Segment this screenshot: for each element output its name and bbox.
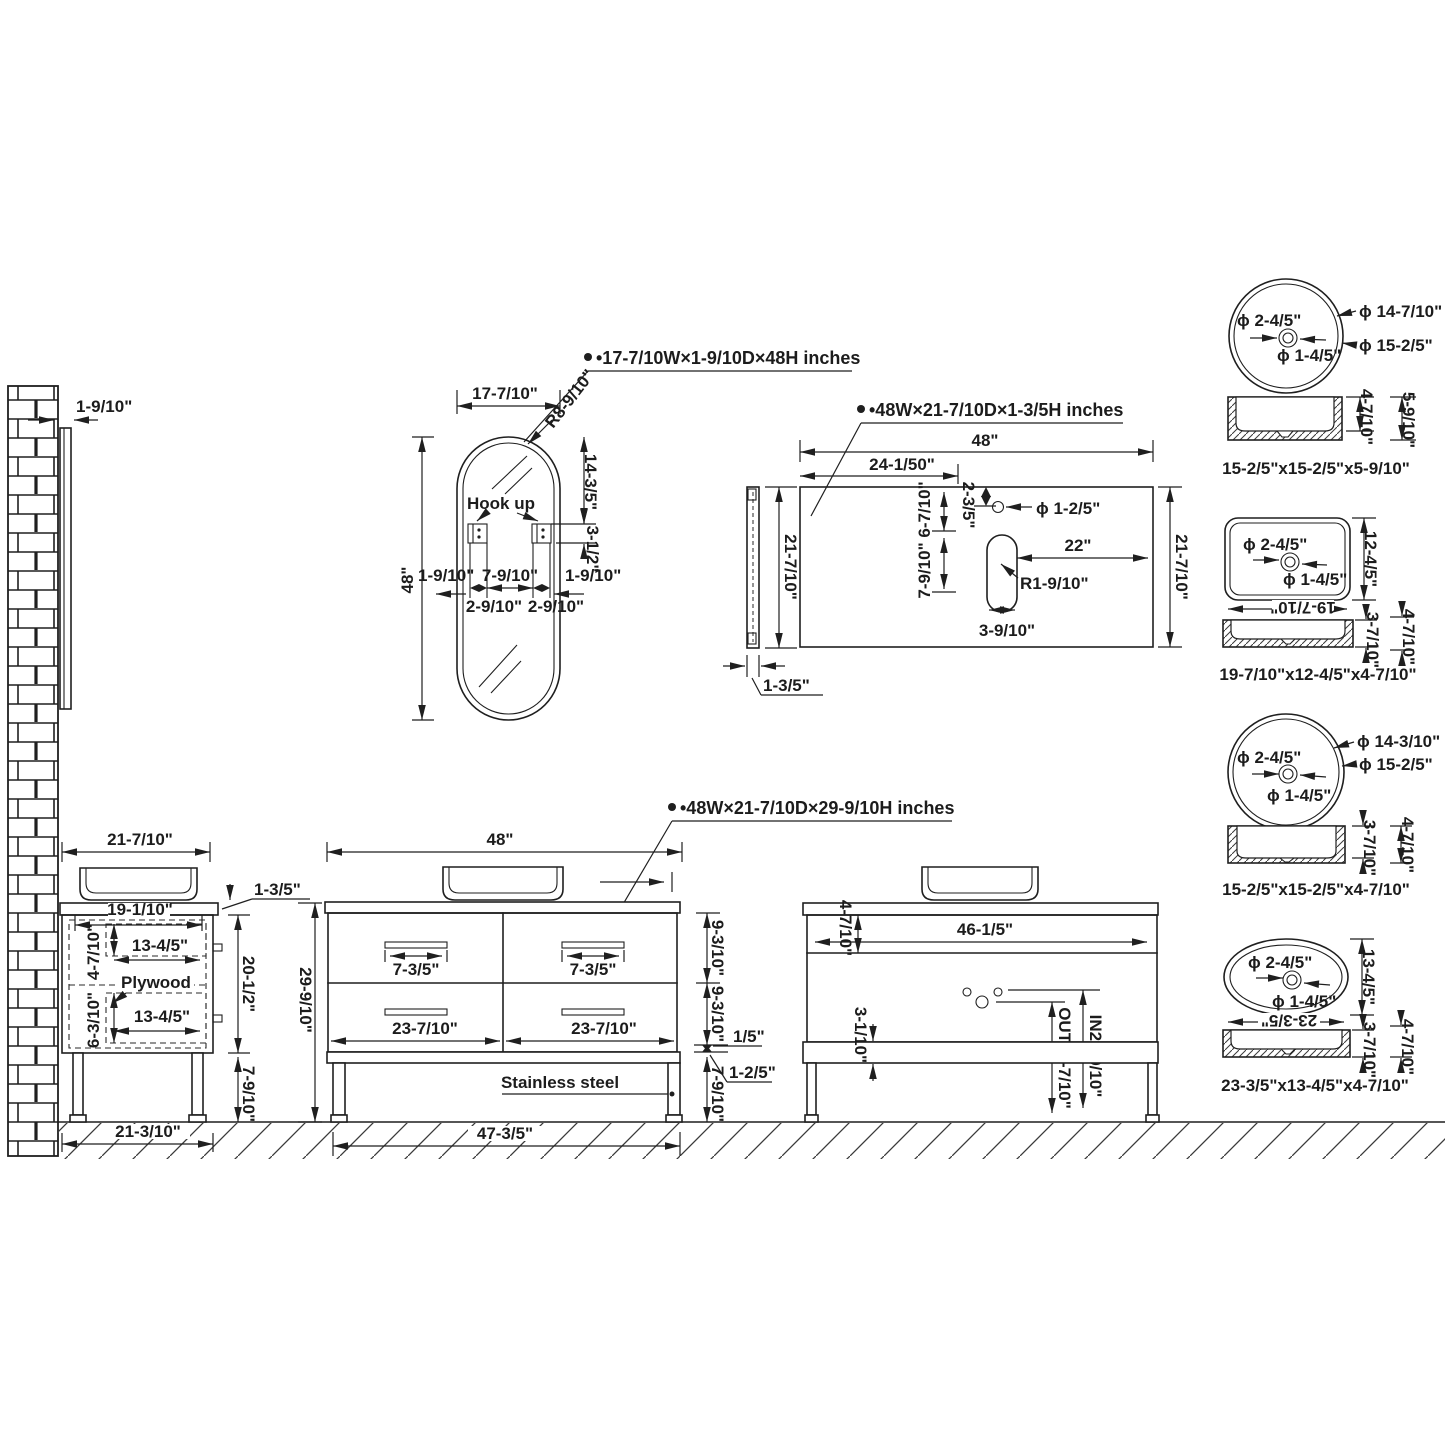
- sink3-outer-dim: ϕ 14-3/10": [1357, 732, 1440, 751]
- slab-depth-dim: 21-7/10": [781, 534, 800, 600]
- sink1-inner-height-dim: 4-7/10": [1357, 389, 1376, 445]
- side-drawer2-height-dim: 6-3/10": [84, 992, 103, 1048]
- countertop-width-dim: 48": [972, 431, 999, 450]
- mirror-hook2-width-dim: 2-9/10": [528, 597, 584, 616]
- sink4-views: ϕ 2-4/5" ϕ 1-4/5" 13-4/5" 23-3/5" 3-7/10…: [1221, 939, 1417, 1095]
- sink2-caption: 19-7/10"x12-4/5"x4-7/10": [1219, 665, 1416, 684]
- side-top-dim: 21-7/10": [107, 830, 173, 849]
- side-floor-dim: 21-3/10": [115, 1122, 181, 1141]
- front-height-dim: 29-9/10": [296, 967, 315, 1033]
- sink2-drain-dim: ϕ 1-4/5": [1283, 570, 1347, 589]
- sink2-inner-height-dim: 3-7/10": [1363, 612, 1382, 668]
- side-leg-height-dim: 7-9/10": [239, 1066, 258, 1122]
- countertop-spec-label: •48W×21-7/10D×1-3/5H inches: [869, 400, 1123, 420]
- side-drawer2-width-dim: 13-4/5": [134, 1007, 190, 1026]
- brick-wall: [8, 386, 58, 1156]
- side-drawer1-width-dim: 13-4/5": [132, 936, 188, 955]
- sink2-height-dim: 12-4/5": [1361, 531, 1380, 587]
- sink1-outer-dim: ϕ 14-7/10": [1359, 302, 1442, 321]
- sink2-outer-height-dim: 4-7/10": [1399, 609, 1418, 665]
- mirror-gap-left-dim: 1-9/10": [418, 566, 474, 585]
- front-leg-dim: 7-9/10": [708, 1066, 727, 1122]
- mirror-hook1-width-dim: 2-9/10": [466, 597, 522, 616]
- sink4-outer-height-dim: 4-7/10": [1398, 1019, 1417, 1075]
- mirror-gap-right-dim: 1-9/10": [565, 566, 621, 585]
- slot-position-dims: 7-9/10" 6-7/10": [915, 481, 934, 598]
- side-thickness-dim: 1-3/5": [254, 880, 301, 899]
- sink4-height-dim: 13-4/5": [1359, 949, 1378, 1005]
- hook-up-label: Hook up: [467, 494, 535, 513]
- sink3-faucet-dim: ϕ 2-4/5": [1237, 748, 1301, 767]
- front-drawer-left-dim: 23-7/10": [392, 1019, 458, 1038]
- sink2-faucet-dim: ϕ 2-4/5": [1243, 535, 1307, 554]
- sink4-caption: 23-3/5"x13-4/5"x4-7/10": [1221, 1076, 1409, 1095]
- mirror-hooks: [468, 524, 551, 543]
- back-top-dim: 4-7/10": [836, 900, 855, 956]
- back-width-dim: 46-1/5": [957, 920, 1013, 939]
- front-drawer-right-dim: 23-7/10": [571, 1019, 637, 1038]
- stainless-steel-label: Stainless steel: [501, 1073, 619, 1092]
- slot-width-dim: 3-9/10": [979, 621, 1035, 640]
- mirror-upper-dim: 14-3/5": [581, 454, 600, 510]
- countertop-top-view: •48W×21-7/10D×1-3/5H inches 48" 24-1/50"…: [800, 400, 1191, 647]
- front-handle-left-dim: 7-3/5": [393, 960, 440, 979]
- countertop-front-dim: 2-3/5": [959, 482, 978, 529]
- vanity-spec-label: •48W×21-7/10D×29-9/10H inches: [680, 798, 954, 818]
- vanity-back-view: 4-7/10" 46-1/5" OUT19-7/10" IN20-9/10" 3…: [803, 867, 1159, 1122]
- front-rail-dim: 1-2/5": [729, 1063, 776, 1082]
- front-base-dim: 47-3/5": [477, 1124, 533, 1143]
- sink4-drain-dim: ϕ 1-4/5": [1272, 992, 1336, 1011]
- sink3-views: ϕ 2-4/5" ϕ 14-3/10" ϕ 15-2/5" ϕ 1-4/5" 3…: [1222, 714, 1440, 899]
- sink1-drain-dim: ϕ 1-4/5": [1277, 346, 1341, 365]
- sink3-inner-height-dim: 3-7/10": [1360, 820, 1379, 876]
- side-cabinet-height-dim: 20-1/2": [239, 956, 258, 1012]
- mirror-width-dim: 17-7/10": [472, 384, 538, 403]
- front-width-dim: 48": [487, 830, 514, 849]
- sink1-faucet-dim: ϕ 2-4/5": [1237, 311, 1301, 330]
- faucet-hole-dim: ϕ 1-2/5": [1036, 499, 1100, 518]
- side-drawer1-height-dim: 4-7/10": [84, 924, 103, 980]
- vanity-spec-drawing: 1-9/10" Hook up •17-7/10W×1-9/10D×48H in…: [0, 0, 1445, 1445]
- mirror-between-dim: 7-9/10": [482, 566, 538, 585]
- sink4-inner-height-dim: 3-7/10": [1360, 1022, 1379, 1078]
- sink1-caption: 15-2/5"x15-2/5"x5-9/10": [1222, 459, 1410, 478]
- slot-offset-dim: 22": [1065, 536, 1092, 555]
- sink1-views: ϕ 2-4/5" ϕ 14-7/10" ϕ 15-2/5" ϕ 1-4/5" 4…: [1222, 279, 1442, 478]
- vanity-side-view: 21-7/10" 1-3/5" 19-1/10" 4-7/10" 13-4/5"…: [60, 830, 310, 1152]
- sink4-faucet-dim: ϕ 2-4/5": [1248, 953, 1312, 972]
- sink3-caption: 15-2/5"x15-2/5"x4-7/10": [1222, 880, 1410, 899]
- front-gap-dim: 1/5": [733, 1027, 765, 1046]
- side-inner-width-dim: 19-1/10": [107, 900, 173, 919]
- sink1-outer-height-dim: 5-9/10": [1399, 392, 1418, 448]
- mirror-spec-label: •17-7/10W×1-9/10D×48H inches: [596, 348, 860, 368]
- ground-hatch: [58, 1122, 1445, 1159]
- countertop-depth-dim: 21-7/10": [1172, 534, 1191, 600]
- sink3-rim-dim: ϕ 15-2/5": [1359, 755, 1433, 774]
- sink2-width-dim: 19-7/10": [1270, 598, 1336, 617]
- sink2-views: ϕ 2-4/5" ϕ 1-4/5" 12-4/5" 19-7/10" 3-7/1…: [1219, 518, 1418, 684]
- sink3-outer-height-dim: 4-7/10": [1398, 817, 1417, 873]
- sink1-rim-dim: ϕ 15-2/5": [1359, 336, 1433, 355]
- sink3-drain-dim: ϕ 1-4/5": [1267, 786, 1331, 805]
- wall-gap-dim: 1-9/10": [76, 397, 132, 416]
- countertop-half-dim: 24-1/50": [869, 455, 935, 474]
- sink4-width-dim: 23-3/5": [1261, 1011, 1317, 1030]
- front-row1-dim: 9-3/10": [708, 920, 727, 976]
- front-row2-dim: 9-3/10": [708, 986, 727, 1042]
- slab-thickness-dim: 1-3/5": [763, 676, 810, 695]
- back-rail-dim: 3-1/10": [851, 1007, 870, 1063]
- vanity-front-view: •48W×21-7/10D×29-9/10H inches 48" 7-3/5"…: [296, 798, 954, 1156]
- drawing-canvas: 1-9/10" Hook up •17-7/10W×1-9/10D×48H in…: [0, 0, 1445, 1445]
- plywood-label: Plywood: [121, 973, 191, 992]
- front-handle-right-dim: 7-3/5": [570, 960, 617, 979]
- countertop-side-view: 21-7/10" 1-3/5": [723, 487, 823, 695]
- slot-radius-dim: R1-9/10": [1020, 574, 1089, 593]
- mirror-height-dim: 48": [398, 567, 417, 594]
